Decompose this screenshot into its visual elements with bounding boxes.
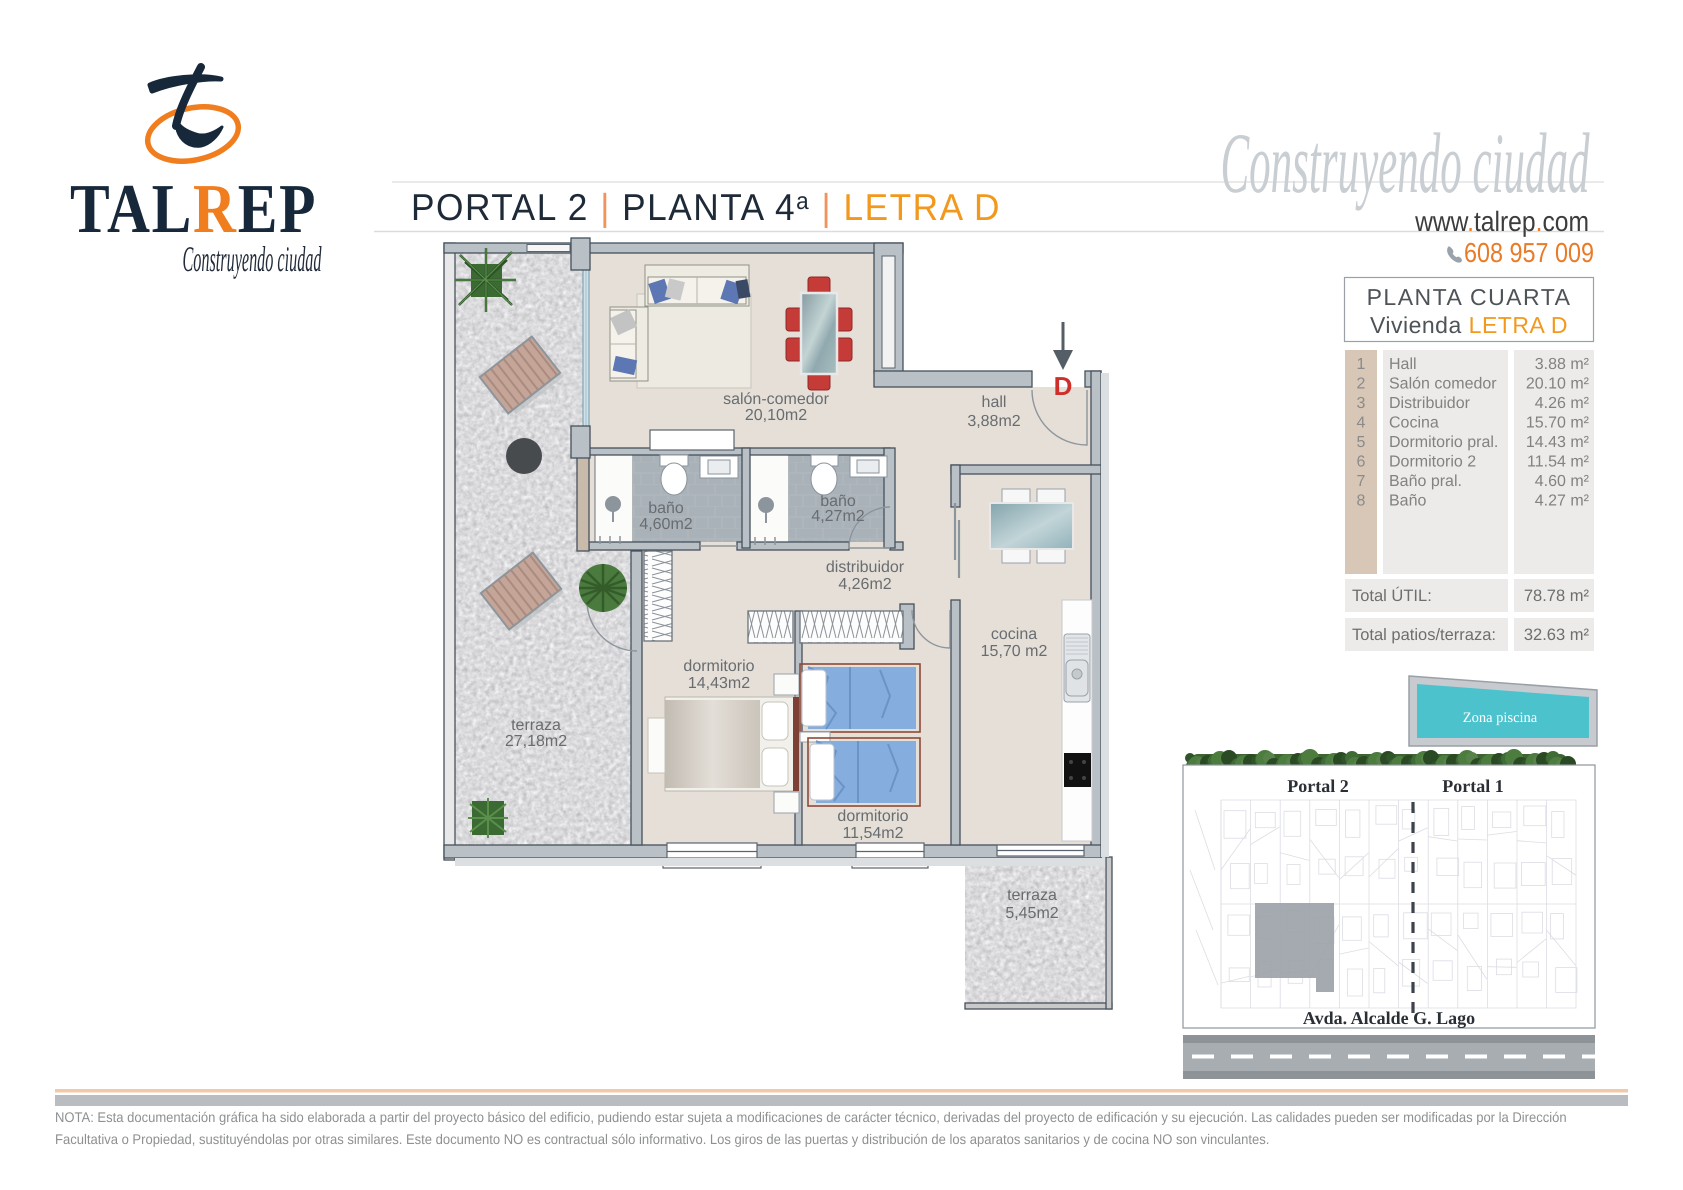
svg-text:6: 6 <box>1357 454 1366 471</box>
svg-text:8: 8 <box>1357 493 1366 510</box>
svg-text:Salón comedor: Salón comedor <box>1389 376 1497 393</box>
svg-text:Baño pral.: Baño pral. <box>1389 473 1462 490</box>
svg-text:Construyendo ciudad: Construyendo ciudad <box>1220 115 1590 211</box>
svg-text:5: 5 <box>1357 434 1366 451</box>
svg-text:32.63 m²: 32.63 m² <box>1524 626 1590 644</box>
svg-text:baño: baño <box>648 500 684 517</box>
svg-text:Dormitorio 2: Dormitorio 2 <box>1389 454 1476 471</box>
svg-text:1: 1 <box>1357 356 1366 373</box>
svg-text:3: 3 <box>1357 395 1366 412</box>
svg-text:4.60 m²: 4.60 m² <box>1535 473 1590 490</box>
svg-text:Avda. Alcalde G. Lago: Avda. Alcalde G. Lago <box>1303 1008 1475 1028</box>
svg-text:11.54 m²: 11.54 m² <box>1527 454 1590 471</box>
svg-text:www.talrep.com: www.talrep.com <box>1414 206 1589 237</box>
svg-text:Total ÚTIL:: Total ÚTIL: <box>1352 586 1432 605</box>
svg-text:78.78 m²: 78.78 m² <box>1524 587 1590 605</box>
svg-text:14,43m2: 14,43m2 <box>688 675 750 692</box>
svg-text:4,27m2: 4,27m2 <box>811 508 864 525</box>
svg-text:Facultativa o Propiedad, susti: Facultativa o Propiedad, sustituyéndolas… <box>55 1131 1269 1147</box>
svg-text:Cocina: Cocina <box>1389 415 1439 432</box>
svg-text:Total patios/terraza:: Total patios/terraza: <box>1352 626 1496 644</box>
svg-text:Construyendo ciudad: Construyendo ciudad <box>182 239 321 279</box>
svg-text:20.10 m²: 20.10 m² <box>1526 376 1590 393</box>
svg-text:4,26m2: 4,26m2 <box>838 576 891 593</box>
svg-text:27,18m2: 27,18m2 <box>505 733 567 750</box>
svg-text:distribuidor: distribuidor <box>826 559 905 576</box>
svg-text:608 957 009: 608 957 009 <box>1464 237 1594 268</box>
svg-text:4.26 m²: 4.26 m² <box>1535 395 1590 412</box>
svg-text:3,88m2: 3,88m2 <box>967 413 1020 430</box>
svg-text:4: 4 <box>1357 415 1366 432</box>
svg-text:cocina: cocina <box>991 626 1037 643</box>
svg-text:Distribuidor: Distribuidor <box>1389 395 1471 412</box>
svg-text:5,45m2: 5,45m2 <box>1005 905 1058 922</box>
svg-text:terraza: terraza <box>511 717 561 734</box>
svg-text:Zona piscina: Zona piscina <box>1463 710 1538 726</box>
svg-text:PLANTA CUARTA: PLANTA CUARTA <box>1367 284 1572 310</box>
svg-text:dormitorio: dormitorio <box>837 808 908 825</box>
svg-text:terraza: terraza <box>1007 887 1057 904</box>
svg-text:TALREP: TALREP <box>70 171 317 248</box>
svg-text:11,54m2: 11,54m2 <box>842 825 903 842</box>
svg-text:7: 7 <box>1357 473 1366 490</box>
svg-text:dormitorio: dormitorio <box>683 658 754 675</box>
svg-text:Hall: Hall <box>1389 356 1417 373</box>
svg-text:Portal 2: Portal 2 <box>1287 776 1348 796</box>
svg-text:15.70 m²: 15.70 m² <box>1526 415 1590 432</box>
svg-text:PORTAL 2 | PLANTA 4a | LETRA D: PORTAL 2 | PLANTA 4a | LETRA D <box>411 186 1001 228</box>
svg-text:Vivienda LETRA D: Vivienda LETRA D <box>1370 312 1568 338</box>
svg-text:14.43 m²: 14.43 m² <box>1526 434 1590 451</box>
svg-text:2: 2 <box>1357 376 1366 393</box>
svg-text:hall: hall <box>982 394 1007 411</box>
svg-text:4,60m2: 4,60m2 <box>639 516 692 533</box>
svg-text:D: D <box>1054 371 1073 401</box>
svg-text:NOTA: Esta documentación gráfi: NOTA: Esta documentación gráfica ha sido… <box>55 1109 1567 1125</box>
svg-text:20,10m2: 20,10m2 <box>745 407 807 424</box>
svg-text:Baño: Baño <box>1389 493 1426 510</box>
svg-text:Dormitorio pral.: Dormitorio pral. <box>1389 434 1498 451</box>
svg-text:4.27 m²: 4.27 m² <box>1535 493 1590 510</box>
svg-text:salón-comedor: salón-comedor <box>723 391 830 408</box>
svg-text:15,70 m2: 15,70 m2 <box>981 643 1048 660</box>
svg-text:Portal 1: Portal 1 <box>1442 776 1503 796</box>
svg-text:3.88 m²: 3.88 m² <box>1535 356 1590 373</box>
